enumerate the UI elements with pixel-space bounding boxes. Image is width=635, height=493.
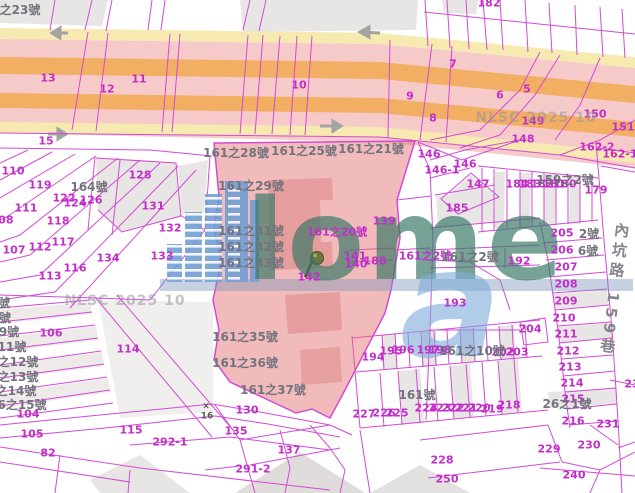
map-svg: [0, 0, 635, 493]
cadastral-map[interactable]: lome a 內坑路 159巷 131211151097568182150149…: [0, 0, 635, 493]
